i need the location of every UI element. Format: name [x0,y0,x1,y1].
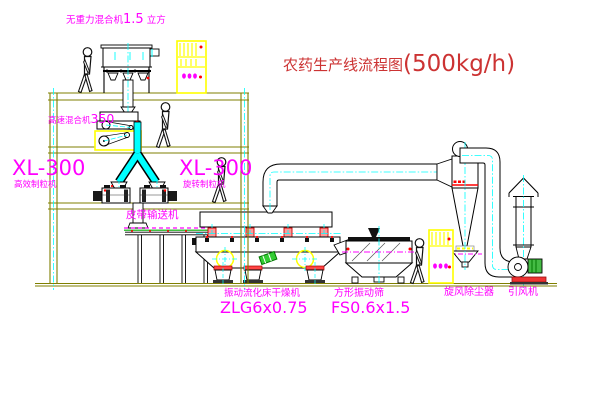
control-cabinet-bottom [429,230,453,283]
person-ground [411,239,425,284]
induced-fan-machine [508,257,548,285]
gravity-mixer-label: 无重力混合机1.5 立方 [66,12,166,27]
granulator-left-name: 高效制粒机 [14,179,57,190]
granulator-left-model: XL-300 [12,156,85,180]
high-speed-mixer-label: 高速混合机350 [48,111,114,126]
belt-conveyor-label: 皮带输送机 [126,208,179,221]
sieve-model-label: FS0.6x1.5 [331,298,410,317]
flow-diagram-canvas: 农药生产线流程图(500kg/h) 无重力混合机1.5 立方 高速混合机350 … [0,0,600,403]
person-top-floor [79,48,93,93]
person-second-floor [157,103,171,148]
dryer-model-label: ZLG6x0.75 [220,298,308,317]
fan-label: 引风机 [508,285,538,298]
granulator-right-model: XL-300 [179,156,252,180]
fluid-bed-dryer-machine [192,206,356,284]
granulator-right-name: 旋转制粒机 [183,179,226,190]
square-sieve-machine [342,226,416,285]
belt-conveyor-machine [124,228,212,283]
gravity-mixer-machine [101,43,159,118]
granulator-left-machine [93,185,130,203]
page-title: 农药生产线流程图(500kg/h) [283,51,515,77]
control-cabinet-top [177,41,206,93]
exhaust-duct [263,164,437,210]
cyclone-label: 旋风除尘器 [444,285,494,298]
granulator-right-machine [140,185,177,203]
